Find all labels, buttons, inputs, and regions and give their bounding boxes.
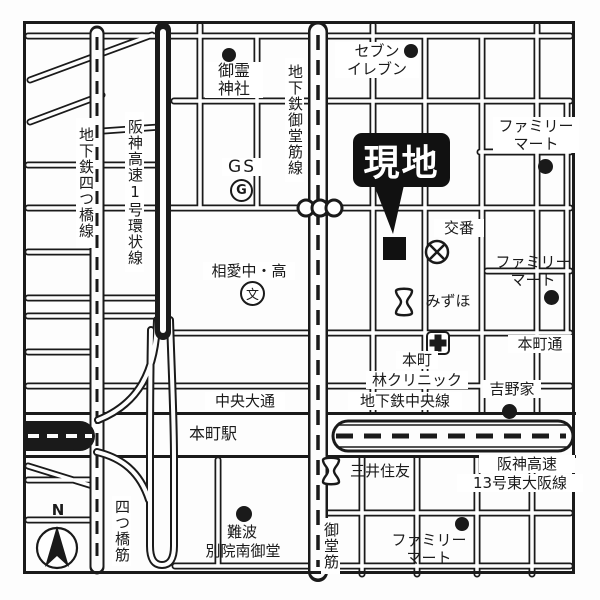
label-hanshin-13-line1: 阪神高速 [479,455,575,473]
label-subway-midosuji-line: 地下鉄御堂筋線 [285,58,304,182]
yoshinoya-dot [502,404,517,419]
familymart3-line2: マート [387,549,471,567]
site-marker-callout: 現地 [353,133,450,187]
label-soai-school: 相愛中・高 [203,262,295,280]
familymart1-line2: マート [494,135,578,153]
label-smbc: 三井住友 [344,462,416,480]
school-icon: 文 [240,281,265,306]
namba-betsuin-dot [236,506,252,522]
label-subway-chuo-line: 地下鉄中央線 [348,392,462,410]
familymart-dot-3 [455,517,469,531]
label-midosuji: 御堂筋 [321,518,340,574]
familymart2-line1: ファミリー [490,253,576,271]
label-honmachi-station: 本町駅 [181,425,245,443]
label-mizuho: みずほ [419,292,477,310]
goryo-shrine-line2: 神社 [206,80,262,98]
label-koban: 交番 [434,219,484,237]
seven-eleven-line2: イレブン [336,60,418,78]
familymart2-line2: マート [490,271,576,289]
label-goryo-shrine: 御霊 神社 [205,62,263,98]
location-map: 地下鉄四つ橋線 阪神高速1号環状線 地下鉄御堂筋線 御堂筋 四つ橋筋 中央大通 … [0,0,600,600]
label-namba-line2: 別院南御堂 [196,542,290,560]
label-yotsubashi-suji: 四つ橋筋 [112,496,131,566]
label-familymart-1: ファミリー マート [493,117,579,153]
familymart1-line1: ファミリー [494,117,578,135]
familymart3-line1: ファミリー [387,531,471,549]
label-chuo-odori: 中央大通 [205,392,285,410]
compass-north-label: N [47,501,69,519]
label-clinic-line2: 林クリニック [366,371,468,389]
label-hanshin-loop-line: 阪神高速1号環状線 [125,112,144,272]
familymart-dot-2 [544,290,559,305]
label-clinic-line1: 本町 [396,351,438,369]
label-gas-station: GS [222,158,262,176]
seven-eleven-dot [404,44,418,58]
label-honmachi-dori: 本町通 [508,335,572,353]
label-yoshinoya: 吉野家 [483,380,541,398]
gas-station-icon: G [230,179,253,202]
familymart-dot-1 [538,159,553,174]
label-familymart-2: ファミリー マート [489,253,577,289]
label-familymart-3: ファミリー マート [386,531,472,567]
goryo-shrine-dot [222,48,236,62]
label-hanshin-13-line2: 13号東大阪線 [457,474,583,492]
label-subway-yotsubashi-line: 地下鉄四つ橋線 [76,118,95,248]
label-namba-line1: 難波 [218,523,266,541]
goryo-shrine-line1: 御霊 [206,62,262,80]
